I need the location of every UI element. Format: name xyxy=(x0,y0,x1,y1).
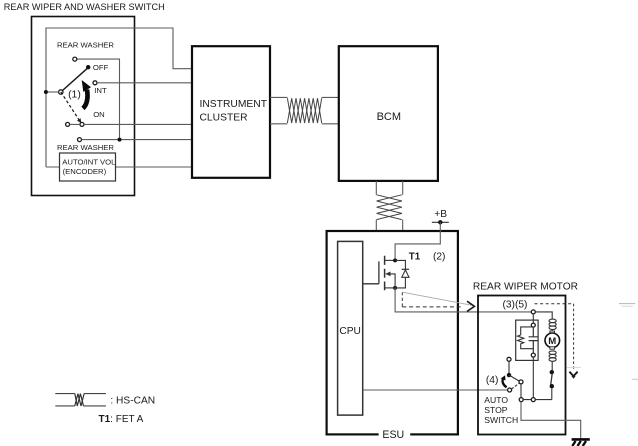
svg-text:OFF: OFF xyxy=(93,63,109,72)
svg-text:CPU: CPU xyxy=(339,326,361,337)
svg-text:(4): (4) xyxy=(486,375,498,386)
svg-text:+B: +B xyxy=(434,209,447,220)
svg-text:ON: ON xyxy=(93,110,105,119)
svg-text:BCM: BCM xyxy=(377,111,401,123)
svg-text:(3)(5): (3)(5) xyxy=(503,300,528,311)
svg-text:(ENCODER): (ENCODER) xyxy=(63,167,107,176)
svg-text:AUTO/INT VOL: AUTO/INT VOL xyxy=(62,157,116,166)
svg-text:REAR WIPER MOTOR: REAR WIPER MOTOR xyxy=(473,281,578,292)
svg-text:ESU: ESU xyxy=(382,429,404,441)
svg-text:STOP: STOP xyxy=(484,405,508,415)
svg-text:: HS-CAN: : HS-CAN xyxy=(110,395,155,406)
svg-text:T1: T1 xyxy=(409,251,421,262)
svg-text:(2): (2) xyxy=(433,251,445,262)
svg-text:REAR WIPER AND WASHER SWITCH: REAR WIPER AND WASHER SWITCH xyxy=(4,2,165,12)
svg-text:SWITCH: SWITCH xyxy=(484,415,518,425)
svg-text:CLUSTER: CLUSTER xyxy=(200,112,248,123)
svg-text:INSTRUMENT: INSTRUMENT xyxy=(200,99,268,110)
svg-text:M: M xyxy=(548,336,556,347)
svg-text:REAR WASHER: REAR WASHER xyxy=(57,143,114,152)
svg-text:AUTO: AUTO xyxy=(484,395,508,405)
svg-text:INT: INT xyxy=(94,86,107,95)
svg-text:REAR WASHER: REAR WASHER xyxy=(57,40,114,49)
svg-text:(1): (1) xyxy=(68,90,81,101)
svg-text:T1: FET A: T1: FET A xyxy=(99,414,144,425)
